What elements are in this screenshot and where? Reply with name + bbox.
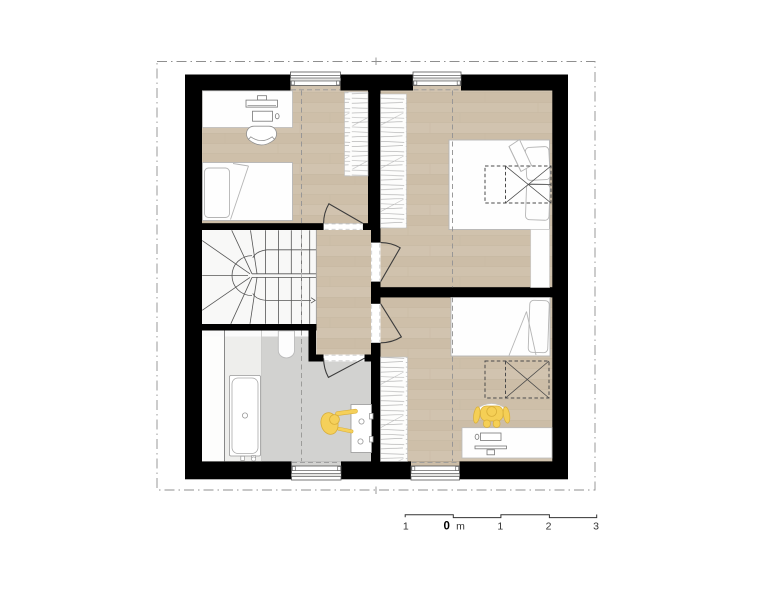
svg-text:1: 1	[497, 521, 503, 533]
svg-text:0: 0	[443, 521, 449, 533]
svg-text:2: 2	[546, 521, 552, 533]
svg-text:m: m	[456, 521, 465, 533]
svg-text:3: 3	[593, 521, 599, 533]
svg-text:1: 1	[403, 521, 409, 533]
